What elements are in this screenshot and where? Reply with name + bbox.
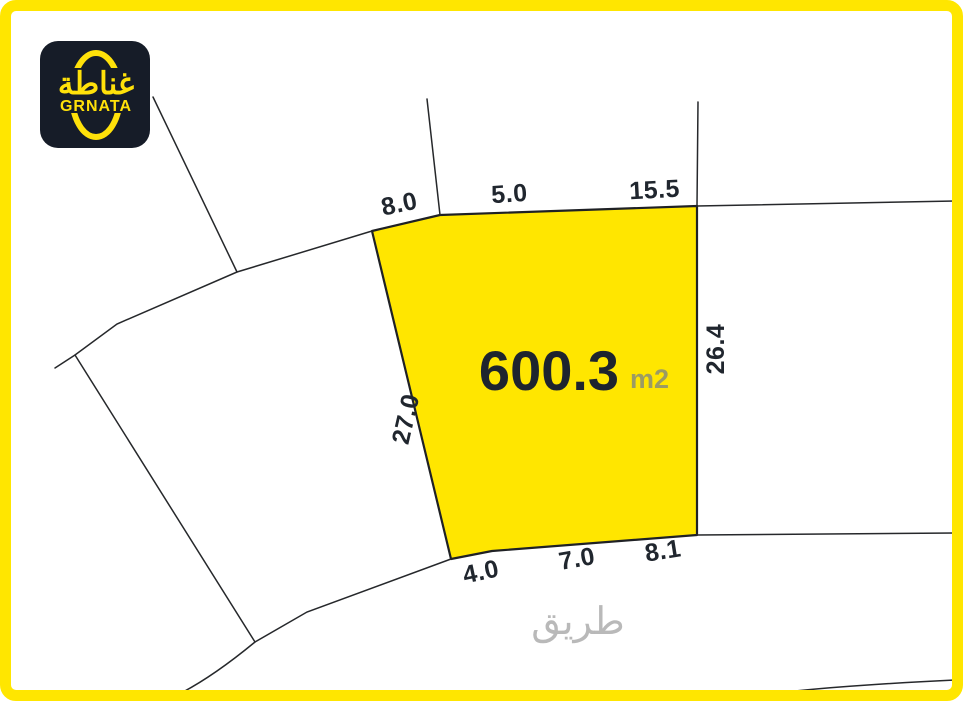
cadastral-drawing: 8.0 5.0 15.5 26.4 27.0 4.0 7.0 8.1 600.3… [0,0,963,701]
road-bottom-edge-right [786,680,955,692]
grnata-logo[interactable]: غناطة GRNATA [40,41,150,148]
dim-bottom-3: 8.1 [643,534,683,567]
plot-map-canvas: 8.0 5.0 15.5 26.4 27.0 4.0 7.0 8.1 600.3… [0,0,963,701]
divider-line-upper-left [153,97,237,272]
area-value: 600.3 [479,339,619,402]
dim-bottom-1: 4.0 [460,555,501,590]
road-top-edge-left [183,559,451,692]
dim-top-1: 8.0 [379,187,420,222]
dim-bottom-2: 7.0 [557,542,598,576]
dim-left: 27.0 [387,391,426,447]
dim-top-2: 5.0 [490,179,528,209]
dim-top-3: 15.5 [629,175,681,206]
boundary-left-of-parcel [55,231,372,368]
road-label: طريق [531,601,624,644]
divider-line-top-right [697,102,698,206]
logo-latin-wordmark: GRNATA [60,98,132,115]
road-top-edge-right [697,533,955,535]
divider-line-lower-left [75,355,255,642]
area-unit: m2 [630,364,669,394]
dim-right: 26.4 [702,324,730,375]
boundary-right-top [697,201,955,206]
logo-arabic-wordmark: غناطة [58,66,134,101]
divider-line-top-short [427,99,440,215]
